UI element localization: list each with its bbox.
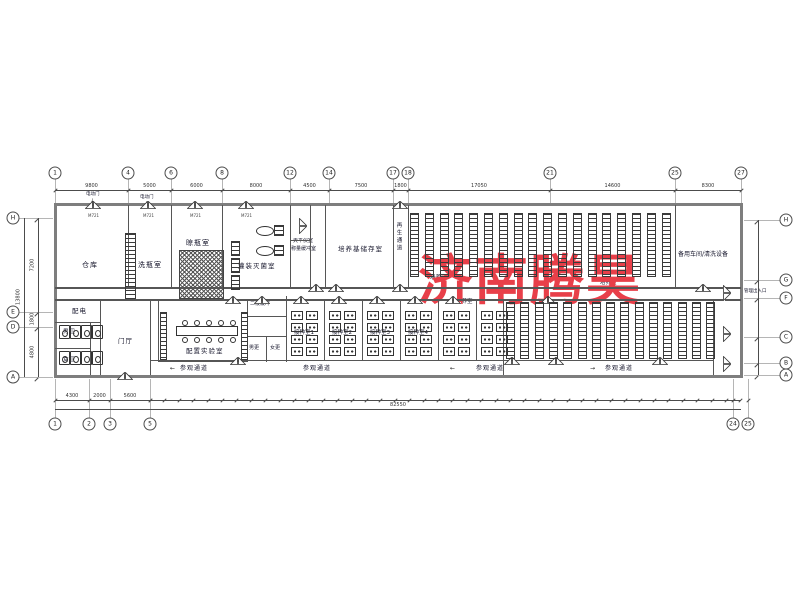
clean-bench-icon [420,335,432,344]
double-door-icon [540,289,556,297]
double-door-icon [730,356,738,372]
wall [55,375,743,378]
dimension-value: 8300 [702,184,715,189]
clean-bench-icon [458,323,470,332]
clean-bench-icon [405,335,417,344]
clean-bench-icon [481,323,493,332]
cultivation-rack-icon [602,213,611,277]
cultivation-rack-icon [558,213,567,277]
room-label-bottle-washing: 洗瓶室 [138,262,162,269]
cultivation-rack-icon [592,302,601,359]
lab-shelf-icon [160,312,167,360]
dimension-value: 1800 [31,313,36,326]
grid-bubble: 24 [727,418,740,431]
cultivation-rack-icon [469,213,478,277]
clean-bench-icon [382,335,394,344]
cultivation-rack-icon [535,302,544,359]
interior-wall [55,322,101,323]
wall [54,203,57,378]
dimension-value: 82550 [390,403,406,408]
door-code-label-3: M721 [190,214,201,218]
interior-wall [150,301,151,375]
room-label-filling-sterilization: 灌装灭菌室 [238,263,276,270]
double-door-icon [85,194,101,202]
arrow-left-icon: ← [450,366,455,372]
toilet-stall-icon [81,325,92,339]
room-label-mens-changing: 男更 [249,346,259,351]
double-door-icon [187,194,203,202]
dimension-value: 17050 [471,184,487,189]
toilet-stall-icon [59,351,70,365]
toilet-stall-icon [92,351,103,365]
clean-bench-icon [291,347,303,356]
cultivation-rack-icon [649,302,658,359]
door-code-label-1: M721 [88,214,99,218]
clean-bench-icon [367,347,379,356]
dimension-value: 14600 [605,184,621,189]
clean-bench-icon [344,323,356,332]
clean-bench-icon [496,347,508,356]
cultivation-rack-icon [563,302,572,359]
interior-wall [362,301,363,360]
dimension-tick [754,375,758,379]
grid-line [744,363,780,364]
grid-bubble: 1 [49,167,62,180]
grid-line [744,220,780,221]
dimension-value: 5000 [143,184,156,189]
interior-wall [438,301,439,360]
stool-icon [194,320,200,326]
clean-bench-icon [481,335,493,344]
stool-icon [194,337,200,343]
dimension-value: 4300 [66,394,79,399]
cultivation-rack-icon [410,213,419,277]
cultivation-rack-icon [425,213,434,277]
room-label-medium-storage: 培养基储存室 [338,246,383,253]
grid-bubble: 5 [144,418,157,431]
clean-bench-icon [443,323,455,332]
dimension-value: 2000 [93,394,106,399]
stool-icon [218,337,224,343]
cultivation-rack-icon [440,213,449,277]
stool-icon [182,337,188,343]
grid-line [744,337,780,338]
toilet-stall-icon [59,325,70,339]
interior-wall [158,301,159,362]
double-door-icon [445,289,461,297]
cultivation-rack-icon [617,213,626,277]
clean-bench-icon [443,311,455,320]
cultivation-rack-icon [663,302,672,359]
dimension-value: 9800 [85,184,98,189]
grid-line [744,375,780,376]
double-door-icon [306,218,314,234]
interior-wall [171,205,172,288]
clean-bench-icon [382,347,394,356]
grid-line [744,298,780,299]
grid-bubble: 21 [544,167,557,180]
stool-icon [206,320,212,326]
clean-bench-icon [367,311,379,320]
cultivation-rack-icon [632,213,641,277]
clean-bench-icon [481,311,493,320]
double-door-icon [331,289,347,297]
cultivation-rack-icon [549,302,558,359]
toilet-stall-icon [70,325,81,339]
clean-bench-icon [344,311,356,320]
cultivation-rack-icon [606,302,615,359]
interior-wall [408,205,409,288]
interior-wall [286,296,287,362]
sterilizer-icon [256,246,274,256]
dimension-line [758,220,759,375]
clean-bench-icon [405,347,417,356]
cultivation-rack-icon [647,213,656,277]
grid-bubble: 17 [387,167,400,180]
interior-wall [266,336,267,362]
grid-bubble: D [7,321,20,334]
lab-shelf-icon [241,312,248,360]
double-door-icon [225,289,241,297]
lab-bench-icon [176,326,238,336]
clean-bench-icon [458,335,470,344]
grid-bubble: 27 [735,167,748,180]
double-door-icon [392,277,408,285]
room-label-weighing-buffer: 称量缓冲室 [291,247,316,252]
clean-bench-icon [291,335,303,344]
cultivation-rack-icon [484,213,493,277]
toilet-stall-icon [70,351,81,365]
interior-wall [247,336,286,337]
grid-bubble: 2 [83,418,96,431]
double-door-icon [308,277,324,285]
drying-area-hatch [179,250,224,299]
autoclave-icon [231,241,240,256]
arrow-left-icon: ← [170,366,175,372]
double-door-icon [254,289,270,297]
grid-line [744,280,780,281]
clean-bench-icon [496,335,508,344]
cultivation-rack-icon [588,213,597,277]
door-code-label-2: M721 [143,214,154,218]
clean-bench-icon [306,323,318,332]
clean-bench-icon [291,323,303,332]
room-label-prep-lab: 配置实验室 [186,348,224,355]
visitor-corridor-label-3: 参观通道 [476,366,504,372]
clean-bench-icon [382,323,394,332]
visitor-corridor-label-2: 参观通道 [303,366,331,372]
interior-wall [55,348,91,349]
dimension-line [38,218,39,377]
dimension-value: 7200 [31,259,36,272]
clean-bench-icon [443,347,455,356]
dimension-value: 6000 [190,184,203,189]
clean-bench-icon [329,323,341,332]
cultivation-rack-icon [706,302,715,359]
double-door-icon [695,277,711,285]
grid-bubble: 25 [669,167,682,180]
floor-plan-sheet: 仓库 洗瓶室 晾瓶室 灌装灭菌室 天平仪室 称量缓冲室 培养基储存室 再生通道 … [0,0,800,600]
grid-bubble: 25 [742,418,755,431]
clean-bench-icon [420,311,432,320]
visitor-corridor-label-1: 参观通道 [180,366,208,372]
clean-bench-icon [382,311,394,320]
door-code-label-4: M721 [241,214,252,218]
clean-bench-icon [420,347,432,356]
cultivation-rack-icon [635,302,644,359]
interior-wall [393,205,394,288]
clean-bench-icon [367,335,379,344]
stool-icon [218,320,224,326]
dimension-value: 4500 [303,184,316,189]
grid-bubble: 3 [104,418,117,431]
room-label-womens-changing: 女更 [270,346,280,351]
grid-bubble: G [780,274,793,287]
arrow-right-icon: → [590,366,595,372]
toilet-stall-icon [81,351,92,365]
cultivation-rack-icon [692,302,701,359]
clean-bench-icon [329,311,341,320]
stool-icon [206,337,212,343]
cultivation-rack-icon [662,213,671,277]
dimension-value: 1800 [394,184,407,189]
sterilizer-icon [274,225,284,236]
toilet-stall-icon [92,325,103,339]
cultivation-rack-icon [578,302,587,359]
clean-bench-icon [458,347,470,356]
double-door-icon [407,289,423,297]
clean-bench-icon [405,323,417,332]
room-label-regen-corridor: 再生通道 [395,222,401,252]
room-label-warehouse: 仓库 [82,262,98,269]
sterilizer-icon [274,245,284,256]
double-door-icon [140,194,156,202]
grid-bubble: E [7,306,20,319]
dimension-line [55,409,741,410]
grid-bubble: C [780,331,793,344]
clean-bench-icon [496,311,508,320]
dimension-value: 7500 [355,184,368,189]
grid-bubble: 8 [216,167,229,180]
double-door-icon [392,194,408,202]
double-door-icon [328,277,344,285]
interior-wall [400,301,401,360]
double-door-icon [238,194,254,202]
dimension-value: 4800 [31,346,36,359]
dimension-value: 8000 [250,184,263,189]
dimension-value: 13800 [17,289,22,305]
clean-bench-icon [458,311,470,320]
cultivation-rack-icon [514,213,523,277]
cultivation-rack-icon [520,302,529,359]
grid-bubble: H [7,212,20,225]
grid-bubble: 18 [402,167,415,180]
cultivation-rack-icon [499,213,508,277]
clean-bench-icon [329,347,341,356]
cultivation-rack-icon [528,213,537,277]
clean-bench-icon [420,323,432,332]
stool-icon [230,320,236,326]
cultivation-rack-icon [678,302,687,359]
clean-bench-icon [443,335,455,344]
grid-bubble: 1 [49,418,62,431]
clean-bench-icon [481,347,493,356]
room-label-spare-workshop: 备用车间/清洗设备 [678,252,728,258]
interior-wall [476,301,477,360]
grid-bubble: F [780,292,793,305]
double-door-icon [293,289,309,297]
cultivation-rack-icon [454,213,463,277]
room-label-power: 配电 [72,308,87,315]
clean-bench-icon [306,347,318,356]
clean-bench-icon [496,323,508,332]
autoclave-icon [231,275,240,290]
stool-icon [230,337,236,343]
clean-bench-icon [367,323,379,332]
dimension-value: 5600 [124,394,137,399]
grid-bubble: 4 [122,167,135,180]
cultivation-rack-icon [573,213,582,277]
stool-icon [182,320,188,326]
bottle-conveyor-icon [125,233,136,299]
sterilizer-icon [256,226,274,236]
grid-bubble: A [780,369,793,382]
interior-wall [324,301,325,360]
clean-bench-icon [306,335,318,344]
interior-wall [290,240,310,241]
visitor-corridor-label-4: 参观通道 [605,366,633,372]
cultivation-rack-icon [543,213,552,277]
clean-bench-icon [344,347,356,356]
room-label-foyer: 门厅 [118,338,133,345]
clean-bench-icon [329,335,341,344]
room-label-bottle-drying: 晾瓶室 [186,240,210,247]
dimension-line [55,190,741,191]
grid-bubble: 14 [323,167,336,180]
interior-wall [325,205,326,288]
double-door-icon [730,326,738,342]
grid-bubble: 12 [284,167,297,180]
dimension-line [24,218,25,377]
clean-bench-icon [291,311,303,320]
double-door-icon [730,285,738,301]
autoclave-icon [231,258,240,273]
clean-bench-icon [344,335,356,344]
interior-wall [290,205,291,288]
dimension-tick [739,398,743,402]
double-door-icon [117,365,133,373]
double-door-icon [369,289,385,297]
grid-bubble: 6 [165,167,178,180]
dimension-tick [34,377,38,381]
wall [740,203,743,378]
interior-wall [247,316,286,317]
interior-wall [675,205,676,288]
grid-bubble: H [780,214,793,227]
grid-bubble: A [7,371,20,384]
clean-bench-icon [405,311,417,320]
clean-bench-icon [306,311,318,320]
management-entrance-label: 管理出入口 [744,290,767,295]
cultivation-rack-icon [620,302,629,359]
